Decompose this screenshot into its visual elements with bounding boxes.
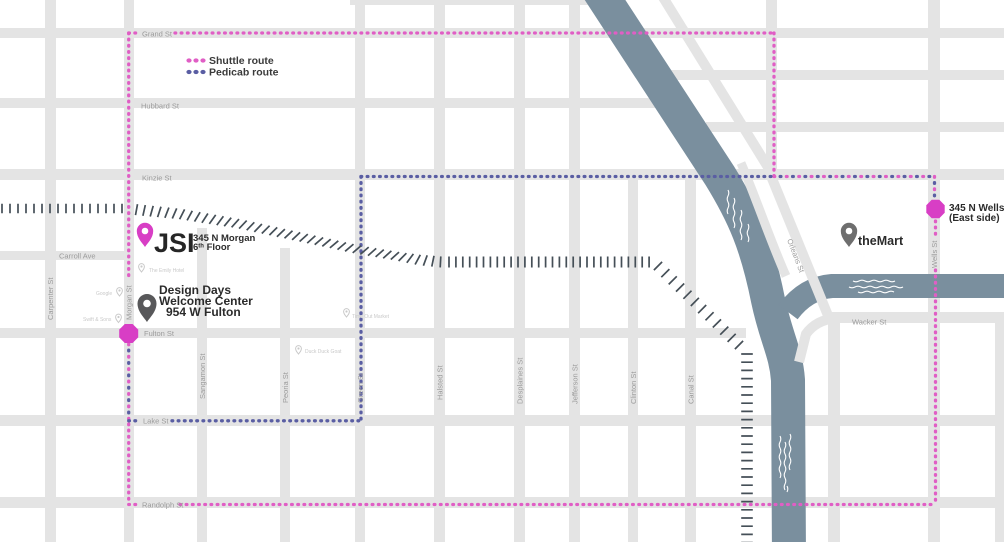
svg-text:theMart: theMart [858, 234, 904, 248]
svg-text:Lake St: Lake St [143, 417, 169, 426]
svg-text:Time Out Market: Time Out Market [352, 314, 390, 320]
svg-text:Google: Google [96, 291, 112, 297]
svg-text:Grand St: Grand St [142, 30, 173, 39]
svg-text:Kinzie St: Kinzie St [142, 174, 173, 183]
svg-text:Canal St: Canal St [687, 374, 696, 404]
svg-text:Pedicab route: Pedicab route [209, 67, 279, 79]
svg-text:Swift & Sons: Swift & Sons [83, 317, 112, 323]
svg-text:954 W Fulton: 954 W Fulton [166, 305, 241, 319]
svg-text:Peoria St: Peoria St [281, 371, 290, 403]
svg-text:Morgan St: Morgan St [125, 284, 134, 320]
svg-text:Halsted St: Halsted St [436, 364, 445, 400]
svg-text:Hubbard St: Hubbard St [141, 102, 180, 111]
svg-text:The Emily Hotel: The Emily Hotel [149, 268, 184, 274]
svg-text:Carpenter St: Carpenter St [46, 277, 55, 320]
svg-text:Jefferson St: Jefferson St [571, 363, 580, 404]
svg-text:Wacker St: Wacker St [852, 318, 887, 327]
svg-text:JSI: JSI [154, 228, 195, 258]
svg-text:Shuttle route: Shuttle route [209, 55, 274, 67]
svg-text:Fulton St: Fulton St [144, 329, 175, 338]
svg-text:(East side): (East side) [949, 213, 1000, 224]
svg-text:Randolph St: Randolph St [142, 501, 184, 510]
svg-text:Carroll Ave: Carroll Ave [59, 252, 96, 261]
svg-text:Clinton St: Clinton St [629, 371, 638, 404]
svg-text:Sangamon St: Sangamon St [198, 353, 207, 399]
svg-text:Duck Duck Goat: Duck Duck Goat [305, 349, 342, 355]
svg-text:Green St: Green St [356, 372, 365, 403]
svg-text:Wells St: Wells St [930, 240, 939, 268]
svg-text:Desplaines St: Desplaines St [516, 357, 525, 404]
